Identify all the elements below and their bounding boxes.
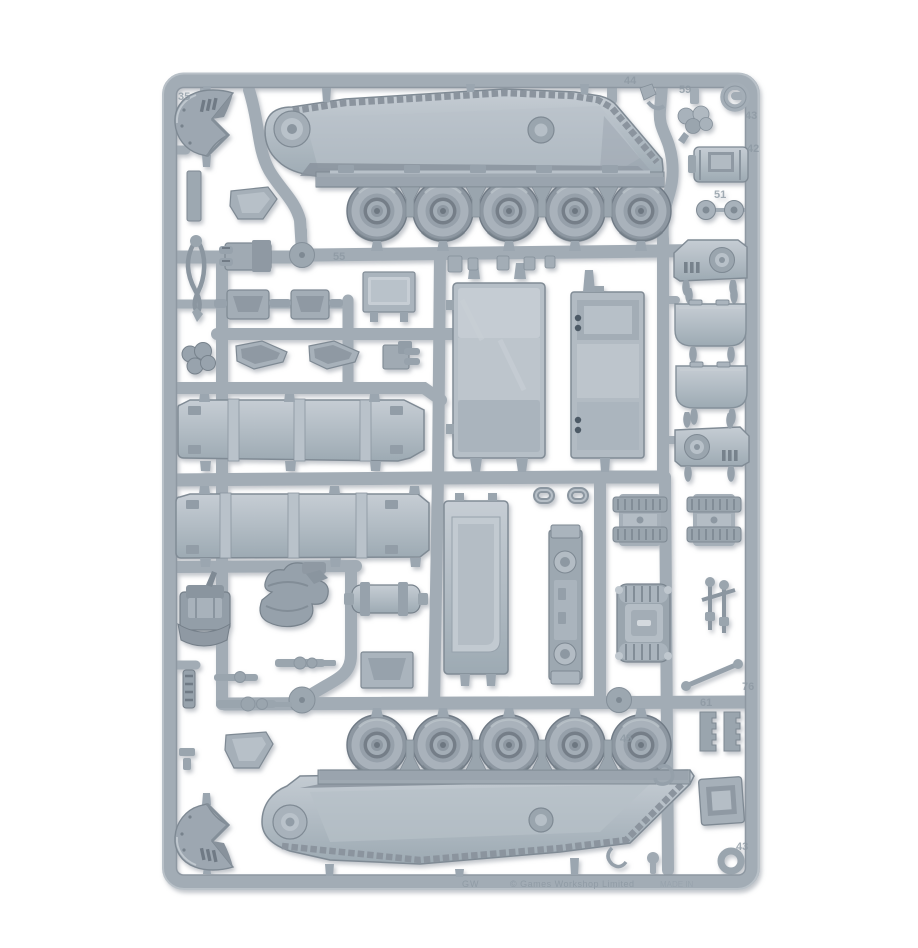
svg-text:45: 45 [620,733,632,745]
svg-text:MADE IN: MADE IN [660,880,694,889]
svg-text:43: 43 [745,110,757,122]
svg-text:© Games Workshop Limited: © Games Workshop Limited [510,879,635,889]
svg-text:GW: GW [462,879,480,889]
svg-text:35: 35 [178,91,190,103]
svg-text:43: 43 [736,841,748,853]
svg-text:42: 42 [747,143,759,155]
svg-text:76: 76 [742,681,754,693]
svg-text:61: 61 [700,697,712,709]
svg-text:59: 59 [679,84,691,96]
svg-text:51: 51 [714,189,726,201]
svg-text:55: 55 [333,251,345,263]
svg-text:44: 44 [624,75,637,87]
